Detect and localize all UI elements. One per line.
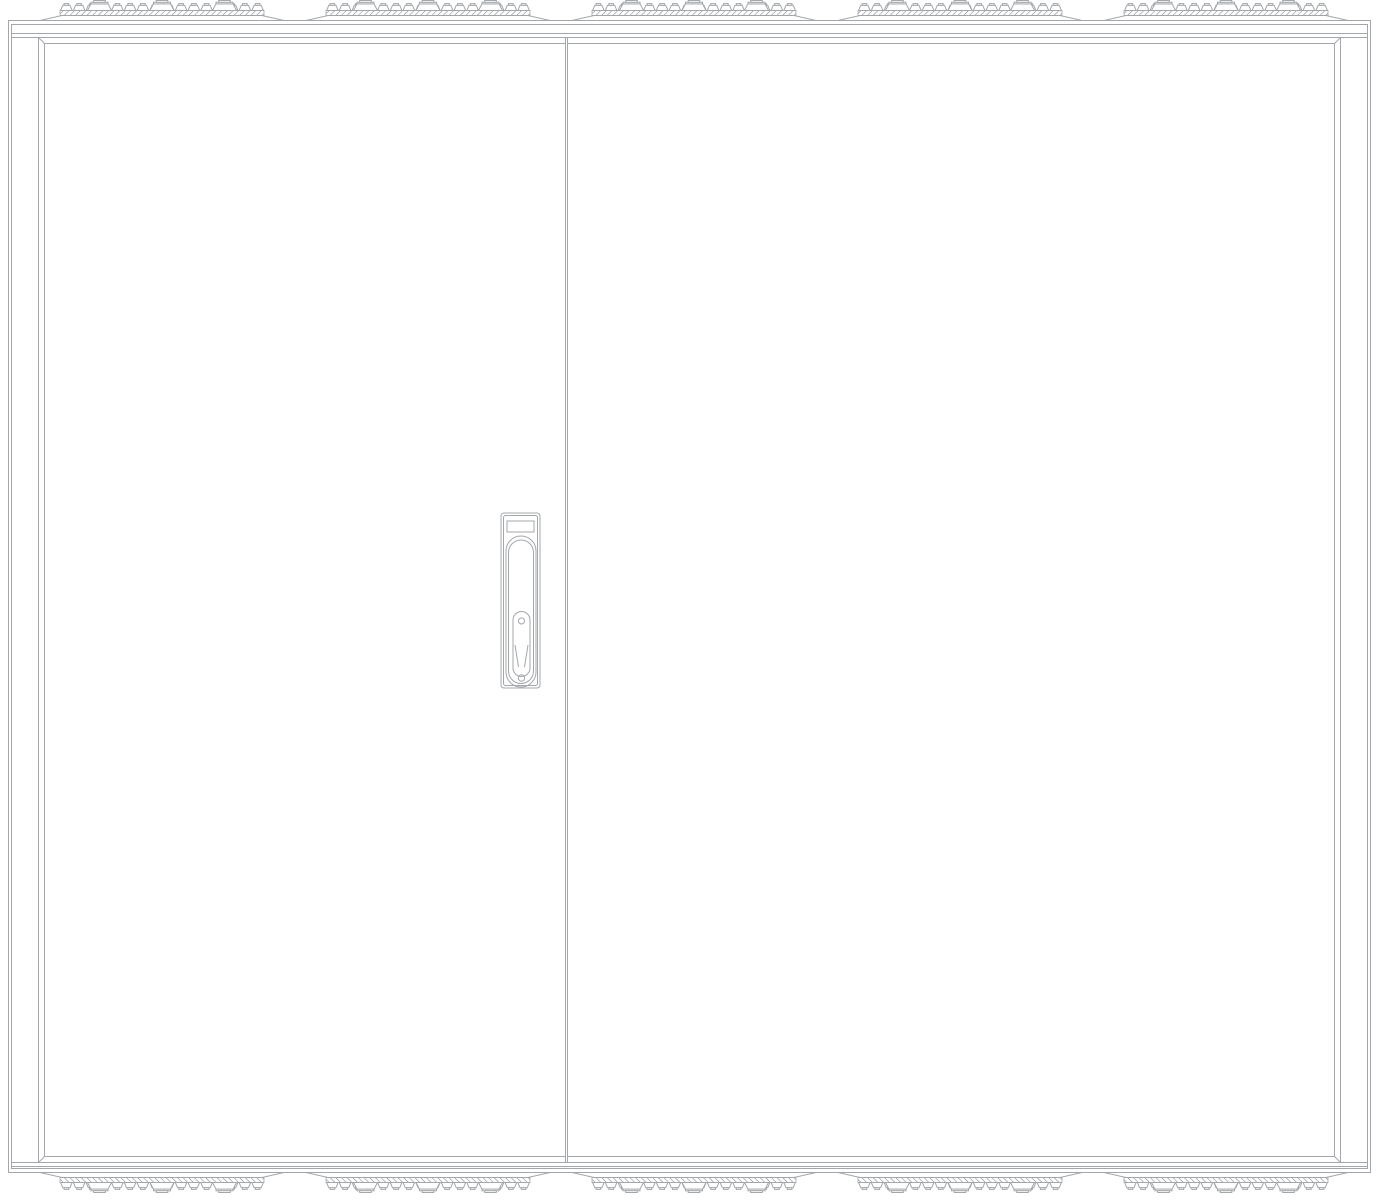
small-gland-cap xyxy=(609,1188,614,1190)
small-gland xyxy=(644,1183,656,1188)
small-gland xyxy=(1303,1183,1315,1188)
small-gland xyxy=(1176,1183,1188,1188)
small-gland-cap xyxy=(64,4,69,6)
small-gland xyxy=(201,1183,213,1188)
large-gland-cap xyxy=(360,1191,372,1193)
large-gland xyxy=(682,1183,706,1190)
small-gland-cap xyxy=(204,4,209,6)
cable-gland-group xyxy=(838,1173,1082,1193)
small-gland xyxy=(390,1183,402,1188)
small-gland-cap xyxy=(128,1188,133,1190)
gland-flange xyxy=(572,16,816,21)
small-gland xyxy=(922,1183,934,1188)
left-door-outline xyxy=(39,38,566,1163)
large-gland-cap xyxy=(688,1,700,3)
brush-seal-strip xyxy=(1124,11,1328,16)
small-gland-cap xyxy=(458,4,463,6)
small-gland-cap xyxy=(913,1188,918,1190)
small-gland-cap xyxy=(141,4,146,6)
large-gland-cap xyxy=(1158,1,1170,3)
small-gland xyxy=(112,5,124,10)
small-gland-cap xyxy=(445,1188,450,1190)
small-gland xyxy=(1037,5,1049,10)
large-gland-cap xyxy=(485,1,497,3)
large-gland xyxy=(620,1183,644,1190)
small-gland-cap xyxy=(1192,4,1197,6)
small-gland-cap xyxy=(192,1188,197,1190)
small-gland-cap xyxy=(1205,4,1210,6)
small-gland-cap xyxy=(394,4,399,6)
small-gland xyxy=(669,1183,681,1188)
cable-gland-group xyxy=(1104,1173,1348,1193)
cable-gland-group xyxy=(306,1,550,21)
handle-bezel-outer xyxy=(501,513,540,688)
right-door-miter xyxy=(1335,38,1341,44)
small-gland-cap xyxy=(1053,1188,1058,1190)
cable-gland-group xyxy=(1104,1,1348,21)
small-gland xyxy=(986,5,998,10)
handle-lever-taper xyxy=(525,645,529,667)
large-gland-cap xyxy=(1220,1,1232,3)
small-gland xyxy=(1252,5,1264,10)
small-gland xyxy=(390,5,402,10)
large-gland xyxy=(1011,1183,1035,1190)
small-gland-cap xyxy=(1268,4,1273,6)
small-gland xyxy=(1316,1183,1328,1188)
small-gland-cap xyxy=(1205,1188,1210,1190)
small-gland xyxy=(720,5,732,10)
small-gland xyxy=(124,1183,136,1188)
cable-gland-group xyxy=(306,1173,550,1193)
small-gland-cap xyxy=(736,4,741,6)
small-gland xyxy=(707,1183,719,1188)
small-gland-cap xyxy=(660,4,665,6)
small-gland-cap xyxy=(330,4,335,6)
small-gland xyxy=(73,5,85,10)
small-gland xyxy=(656,5,668,10)
large-gland xyxy=(150,1183,174,1190)
small-gland-cap xyxy=(179,4,184,6)
small-gland-cap xyxy=(1128,1188,1133,1190)
large-gland xyxy=(1011,4,1035,11)
small-gland xyxy=(859,1183,871,1188)
small-gland xyxy=(467,5,479,10)
cable-gland-group xyxy=(40,1173,284,1193)
large-gland xyxy=(682,4,706,11)
small-gland xyxy=(378,5,390,10)
large-gland xyxy=(745,4,769,11)
large-gland-cap xyxy=(892,1191,904,1193)
small-gland-cap xyxy=(1141,1188,1146,1190)
large-gland xyxy=(354,4,378,11)
gland-flange xyxy=(1104,1173,1348,1178)
small-gland xyxy=(1137,1183,1149,1188)
small-gland-cap xyxy=(1041,1188,1046,1190)
small-gland-cap xyxy=(1243,4,1248,6)
large-gland-cap xyxy=(626,1191,638,1193)
small-gland-cap xyxy=(343,4,348,6)
small-gland xyxy=(1252,1183,1264,1188)
small-gland-cap xyxy=(609,4,614,6)
small-gland-cap xyxy=(596,1188,601,1190)
large-gland xyxy=(1277,1183,1301,1190)
small-gland xyxy=(910,5,922,10)
large-gland xyxy=(948,1183,972,1190)
small-gland-cap xyxy=(1243,1188,1248,1190)
large-gland-cap xyxy=(1017,1,1029,3)
small-gland xyxy=(1125,5,1137,10)
small-gland-cap xyxy=(407,1188,412,1190)
handle-lever-taper xyxy=(515,645,519,667)
small-gland xyxy=(771,5,783,10)
small-gland xyxy=(252,5,264,10)
large-gland-cap xyxy=(1158,1191,1170,1193)
brush-seal-strip xyxy=(592,1178,796,1183)
large-gland xyxy=(745,1183,769,1190)
small-gland-cap xyxy=(1002,4,1007,6)
small-gland-cap xyxy=(1256,4,1261,6)
small-gland xyxy=(720,1183,732,1188)
large-gland xyxy=(416,1183,440,1190)
small-gland xyxy=(1037,1183,1049,1188)
small-gland-cap xyxy=(521,4,526,6)
enclosure-body xyxy=(9,21,1371,1173)
right-door-fold-line xyxy=(568,44,1335,1157)
brush-seal-strip xyxy=(60,1178,264,1183)
small-gland xyxy=(378,1183,390,1188)
small-gland-cap xyxy=(1053,4,1058,6)
small-gland xyxy=(339,5,351,10)
large-gland xyxy=(1152,4,1176,11)
small-gland xyxy=(1188,5,1200,10)
large-gland xyxy=(1214,4,1238,11)
brush-seal-strip xyxy=(60,11,264,16)
gland-flange xyxy=(838,16,1082,21)
small-gland xyxy=(859,5,871,10)
gland-flange xyxy=(1104,16,1348,21)
small-gland xyxy=(518,1183,530,1188)
small-gland xyxy=(1201,1183,1213,1188)
cable-gland-group xyxy=(572,1173,816,1193)
small-gland xyxy=(871,1183,883,1188)
small-gland-cap xyxy=(926,4,931,6)
small-gland-cap xyxy=(875,4,880,6)
body-outer-edge xyxy=(9,21,1371,1173)
small-gland-cap xyxy=(736,1188,741,1190)
brush-seal-strip xyxy=(858,1178,1062,1183)
small-gland-cap xyxy=(787,1188,792,1190)
small-gland-cap xyxy=(787,4,792,6)
small-gland-cap xyxy=(1192,1188,1197,1190)
small-gland-cap xyxy=(509,4,514,6)
large-gland-cap xyxy=(688,1191,700,1193)
small-gland-cap xyxy=(596,4,601,6)
large-gland-cap xyxy=(422,1,434,3)
gland-flange xyxy=(838,1173,1082,1178)
small-gland xyxy=(973,5,985,10)
small-gland xyxy=(999,5,1011,10)
small-gland-cap xyxy=(673,4,678,6)
cable-gland-group xyxy=(572,1,816,21)
small-gland xyxy=(112,1183,124,1188)
small-gland xyxy=(784,5,796,10)
small-gland xyxy=(518,5,530,10)
large-gland xyxy=(150,4,174,11)
large-gland-cap xyxy=(1283,1191,1295,1193)
small-gland-cap xyxy=(470,1188,475,1190)
small-gland-cap xyxy=(243,4,248,6)
large-gland xyxy=(886,1183,910,1190)
handle-label-plate xyxy=(507,521,534,532)
small-gland xyxy=(784,1183,796,1188)
small-gland-cap xyxy=(1141,4,1146,6)
small-gland-cap xyxy=(128,4,133,6)
small-gland-cap xyxy=(115,4,120,6)
right-door-outline xyxy=(568,38,1341,1163)
small-gland xyxy=(327,5,339,10)
left-door xyxy=(39,38,566,1163)
small-gland-cap xyxy=(179,1188,184,1190)
large-gland xyxy=(88,1183,112,1190)
large-gland-cap xyxy=(954,1191,966,1193)
small-gland xyxy=(1137,5,1149,10)
large-gland xyxy=(213,1183,237,1190)
small-gland xyxy=(1239,5,1251,10)
large-gland-cap xyxy=(219,1191,231,1193)
body-inner-edge xyxy=(12,25,1368,1169)
handle-lever xyxy=(513,612,530,677)
small-gland-cap xyxy=(647,1188,652,1190)
brush-seal-strip xyxy=(592,11,796,16)
bottom-cable-entry-row xyxy=(40,1173,1348,1193)
small-gland xyxy=(175,1183,187,1188)
small-gland-cap xyxy=(1307,1188,1312,1190)
small-gland-cap xyxy=(775,4,780,6)
small-gland xyxy=(707,5,719,10)
small-gland xyxy=(656,1183,668,1188)
small-gland xyxy=(1050,5,1062,10)
drawing-canvas xyxy=(0,0,1379,1200)
small-gland xyxy=(1303,5,1315,10)
small-gland-cap xyxy=(990,4,995,6)
gland-flange xyxy=(572,1173,816,1178)
small-gland xyxy=(239,1183,251,1188)
small-gland-cap xyxy=(141,1188,146,1190)
large-gland-cap xyxy=(892,1,904,3)
gland-flange xyxy=(306,16,550,21)
large-gland-cap xyxy=(156,1191,168,1193)
small-gland-cap xyxy=(521,1188,526,1190)
small-gland xyxy=(252,1183,264,1188)
small-gland xyxy=(441,1183,453,1188)
small-gland-cap xyxy=(673,1188,678,1190)
small-gland xyxy=(403,5,415,10)
small-gland xyxy=(239,5,251,10)
gland-flange xyxy=(306,1173,550,1178)
small-gland-cap xyxy=(1041,4,1046,6)
small-gland-cap xyxy=(660,1188,665,1190)
small-gland-cap xyxy=(394,1188,399,1190)
small-gland-cap xyxy=(381,4,386,6)
small-gland-cap xyxy=(724,4,729,6)
small-gland-cap xyxy=(1319,4,1324,6)
small-gland xyxy=(1050,1183,1062,1188)
large-gland xyxy=(479,4,503,11)
small-gland-cap xyxy=(1319,1188,1324,1190)
small-gland-cap xyxy=(724,1188,729,1190)
small-gland xyxy=(1239,1183,1251,1188)
small-gland xyxy=(73,1183,85,1188)
small-gland xyxy=(1188,1183,1200,1188)
small-gland-cap xyxy=(939,1188,944,1190)
small-gland xyxy=(935,1183,947,1188)
large-gland-cap xyxy=(422,1191,434,1193)
small-gland xyxy=(935,5,947,10)
small-gland-cap xyxy=(243,1188,248,1190)
brush-seal-strip xyxy=(1124,1178,1328,1183)
small-gland-cap xyxy=(977,4,982,6)
small-gland-cap xyxy=(875,1188,880,1190)
small-gland xyxy=(986,1183,998,1188)
small-gland xyxy=(605,5,617,10)
right-door xyxy=(568,38,1341,1163)
large-gland xyxy=(213,4,237,11)
large-gland-cap xyxy=(1017,1191,1029,1193)
small-gland-cap xyxy=(343,1188,348,1190)
small-gland-cap xyxy=(255,1188,260,1190)
small-gland xyxy=(441,5,453,10)
large-gland-cap xyxy=(954,1,966,3)
small-gland-cap xyxy=(1128,4,1133,6)
small-gland xyxy=(1201,5,1213,10)
small-gland-cap xyxy=(862,1188,867,1190)
large-gland-cap xyxy=(1220,1191,1232,1193)
handle-lock-screw xyxy=(518,675,524,681)
large-gland xyxy=(1277,4,1301,11)
small-gland-cap xyxy=(862,4,867,6)
small-gland xyxy=(137,5,149,10)
small-gland xyxy=(467,1183,479,1188)
door-handle xyxy=(501,513,540,688)
small-gland-cap xyxy=(1002,1188,1007,1190)
small-gland-cap xyxy=(711,1188,716,1190)
small-gland-cap xyxy=(115,1188,120,1190)
small-gland-cap xyxy=(1268,1188,1273,1190)
small-gland xyxy=(733,1183,745,1188)
brush-seal-strip xyxy=(326,1178,530,1183)
small-gland xyxy=(188,5,200,10)
left-door-miter xyxy=(39,1157,45,1163)
small-gland-cap xyxy=(913,4,918,6)
small-gland xyxy=(1265,1183,1277,1188)
small-gland-cap xyxy=(1307,4,1312,6)
small-gland-cap xyxy=(192,4,197,6)
cable-gland-group xyxy=(838,1,1082,21)
large-gland-cap xyxy=(751,1,763,3)
gland-flange xyxy=(40,16,284,21)
small-gland xyxy=(454,1183,466,1188)
small-gland xyxy=(403,1183,415,1188)
small-gland-cap xyxy=(775,1188,780,1190)
small-gland xyxy=(188,1183,200,1188)
left-door-fold-line xyxy=(45,44,566,1157)
small-gland xyxy=(124,5,136,10)
small-gland xyxy=(201,5,213,10)
large-gland xyxy=(1214,1183,1238,1190)
small-gland xyxy=(593,5,605,10)
small-gland-cap xyxy=(990,1188,995,1190)
small-gland-cap xyxy=(458,1188,463,1190)
large-gland-cap xyxy=(751,1191,763,1193)
large-gland xyxy=(354,1183,378,1190)
small-gland xyxy=(1125,1183,1137,1188)
brush-seal-strip xyxy=(326,11,530,16)
large-gland xyxy=(1152,1183,1176,1190)
small-gland-cap xyxy=(77,4,82,6)
large-gland-cap xyxy=(156,1,168,3)
small-gland-cap xyxy=(470,4,475,6)
small-gland-cap xyxy=(1179,4,1184,6)
small-gland xyxy=(1316,5,1328,10)
small-gland-cap xyxy=(647,4,652,6)
large-gland xyxy=(886,4,910,11)
small-gland-cap xyxy=(330,1188,335,1190)
small-gland xyxy=(593,1183,605,1188)
small-gland-cap xyxy=(1256,1188,1261,1190)
small-gland xyxy=(973,1183,985,1188)
small-gland xyxy=(61,5,73,10)
small-gland xyxy=(644,5,656,10)
small-gland-cap xyxy=(77,1188,82,1190)
large-gland xyxy=(416,4,440,11)
small-gland-cap xyxy=(64,1188,69,1190)
large-gland-cap xyxy=(1283,1,1295,3)
small-gland xyxy=(771,1183,783,1188)
small-gland xyxy=(605,1183,617,1188)
large-gland xyxy=(88,4,112,11)
large-gland xyxy=(948,4,972,11)
small-gland xyxy=(505,1183,517,1188)
small-gland xyxy=(137,1183,149,1188)
small-gland-cap xyxy=(407,4,412,6)
small-gland-cap xyxy=(509,1188,514,1190)
handle-pivot-screw xyxy=(519,618,525,624)
cable-gland-group xyxy=(40,1,284,21)
left-door-miter xyxy=(39,38,45,44)
large-gland-cap xyxy=(360,1,372,3)
large-gland xyxy=(620,4,644,11)
small-gland-cap xyxy=(939,4,944,6)
small-gland-cap xyxy=(711,4,716,6)
large-gland-cap xyxy=(94,1,106,3)
large-gland-cap xyxy=(219,1,231,3)
small-gland-cap xyxy=(381,1188,386,1190)
large-gland-cap xyxy=(94,1191,106,1193)
small-gland xyxy=(733,5,745,10)
small-gland xyxy=(1265,5,1277,10)
large-gland-cap xyxy=(626,1,638,3)
small-gland xyxy=(339,1183,351,1188)
small-gland xyxy=(175,5,187,10)
small-gland-cap xyxy=(204,1188,209,1190)
gland-flange xyxy=(40,1173,284,1178)
small-gland xyxy=(327,1183,339,1188)
small-gland xyxy=(454,5,466,10)
small-gland xyxy=(505,5,517,10)
small-gland xyxy=(999,1183,1011,1188)
large-gland-cap xyxy=(485,1191,497,1193)
small-gland xyxy=(871,5,883,10)
